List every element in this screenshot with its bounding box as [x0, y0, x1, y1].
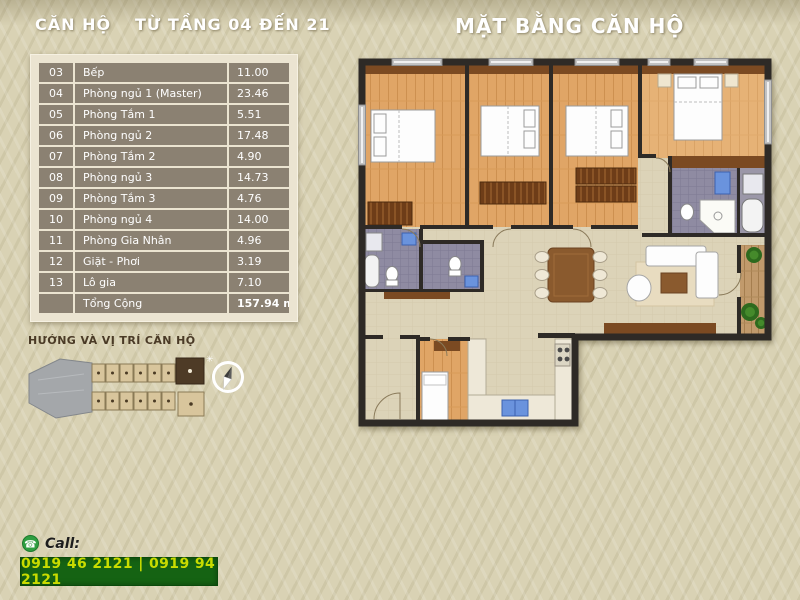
room-name: Phòng Tắm 1	[75, 105, 227, 124]
room-area: 11.00	[229, 63, 289, 82]
plan-title: MẶT BẰNG CĂN HỘ	[455, 14, 684, 38]
room-area: 5.51	[229, 105, 289, 124]
table-total-row: Tổng Cộng 157.94 m²	[39, 294, 289, 313]
table-row: 13 Lô gia 7.10	[39, 273, 289, 292]
sofa	[696, 252, 718, 298]
master-vanity-counter	[670, 156, 768, 168]
site-minimap: ✳	[26, 350, 250, 430]
room-area: 23.46	[229, 84, 289, 103]
room-number: 13	[39, 273, 73, 292]
svg-text:☎: ☎	[24, 540, 36, 551]
room-name: Phòng Gia Nhân	[75, 231, 227, 250]
room-number: 05	[39, 105, 73, 124]
room-name: Phòng ngủ 1 (Master)	[75, 84, 227, 103]
room-name: Phòng ngủ 2	[75, 126, 227, 145]
call-row: ☎ Call:	[22, 535, 80, 552]
dining-table	[548, 248, 594, 302]
room-area: 4.76	[229, 189, 289, 208]
room-area: 7.10	[229, 273, 289, 292]
room-number: 11	[39, 231, 73, 250]
table-row: 08 Phòng ngủ 3 14.73	[39, 168, 289, 187]
room-area: 14.00	[229, 210, 289, 229]
room-area: 3.19	[229, 252, 289, 271]
room-number: 12	[39, 252, 73, 271]
room-name: Phòng ngủ 4	[75, 210, 227, 229]
room-area: 4.90	[229, 147, 289, 166]
room-area: 17.48	[229, 126, 289, 145]
total-empty-cell	[39, 294, 73, 313]
room-name: Phòng Tắm 2	[75, 147, 227, 166]
total-label: Tổng Cộng	[75, 294, 227, 313]
wardrobe	[576, 186, 636, 202]
room-number: 04	[39, 84, 73, 103]
room-number: 07	[39, 147, 73, 166]
kitchen-counter	[468, 339, 486, 397]
wardrobe	[576, 168, 636, 184]
phone-numbers[interactable]: 0919 46 2121 | 0919 94 2121	[21, 556, 217, 588]
table-row: 04 Phòng ngủ 1 (Master) 23.46	[39, 84, 289, 103]
table-row: 05 Phòng Tắm 1 5.51	[39, 105, 289, 124]
bathtub	[742, 199, 763, 232]
room-area-table: 03 Bếp 11.00 04 Phòng ngủ 1 (Master) 23.…	[30, 54, 298, 322]
washer	[743, 174, 763, 194]
table-row: 09 Phòng Tắm 3 4.76	[39, 189, 289, 208]
armchair	[627, 275, 651, 301]
living-sideboard	[604, 323, 716, 334]
compass-icon	[209, 358, 246, 395]
room-number: 03	[39, 63, 73, 82]
stove	[555, 344, 570, 366]
room-area: 14.73	[229, 168, 289, 187]
room-number: 06	[39, 126, 73, 145]
phone-icon: ☎	[22, 535, 39, 552]
total-area-value: 157.94 m²	[229, 294, 289, 313]
room-name: Phòng ngủ 3	[75, 168, 227, 187]
room-area: 4.96	[229, 231, 289, 250]
room-name: Giặt - Phơi	[75, 252, 227, 271]
table-row: 11 Phòng Gia Nhân 4.96	[39, 231, 289, 250]
page: CĂN HỘ TỪ TẦNG 04 ĐẾN 21 MẶT BẰNG CĂN HỘ…	[0, 0, 800, 600]
table-row: 06 Phòng ngủ 2 17.48	[39, 126, 289, 145]
table-row: 12 Giặt - Phơi 3.19	[39, 252, 289, 271]
table-row: 03 Bếp 11.00	[39, 63, 289, 82]
phone-number-box[interactable]: 0919 46 2121 | 0919 94 2121	[20, 557, 218, 586]
room-name: Bếp	[75, 63, 227, 82]
table-row: 07 Phòng Tắm 2 4.90	[39, 147, 289, 166]
room-number: 08	[39, 168, 73, 187]
call-label: Call:	[45, 536, 80, 552]
unit-label: CĂN HỘ	[35, 15, 111, 34]
wardrobe	[368, 202, 412, 225]
location-section-label: HƯỚNG VÀ VỊ TRÍ CĂN HỘ	[28, 334, 196, 347]
table-row: 10 Phòng ngủ 4 14.00	[39, 210, 289, 229]
coffee-table	[661, 273, 687, 293]
floors-label: TỪ TẦNG 04 ĐẾN 21	[135, 15, 331, 34]
room-number: 10	[39, 210, 73, 229]
compass-star-icon: ✳	[206, 355, 214, 365]
floor-plan-image	[352, 50, 776, 435]
room-number: 09	[39, 189, 73, 208]
podium-shape	[29, 359, 92, 418]
room-name: Phòng Tắm 3	[75, 189, 227, 208]
wardrobe	[480, 182, 546, 204]
room-name: Lô gia	[75, 273, 227, 292]
